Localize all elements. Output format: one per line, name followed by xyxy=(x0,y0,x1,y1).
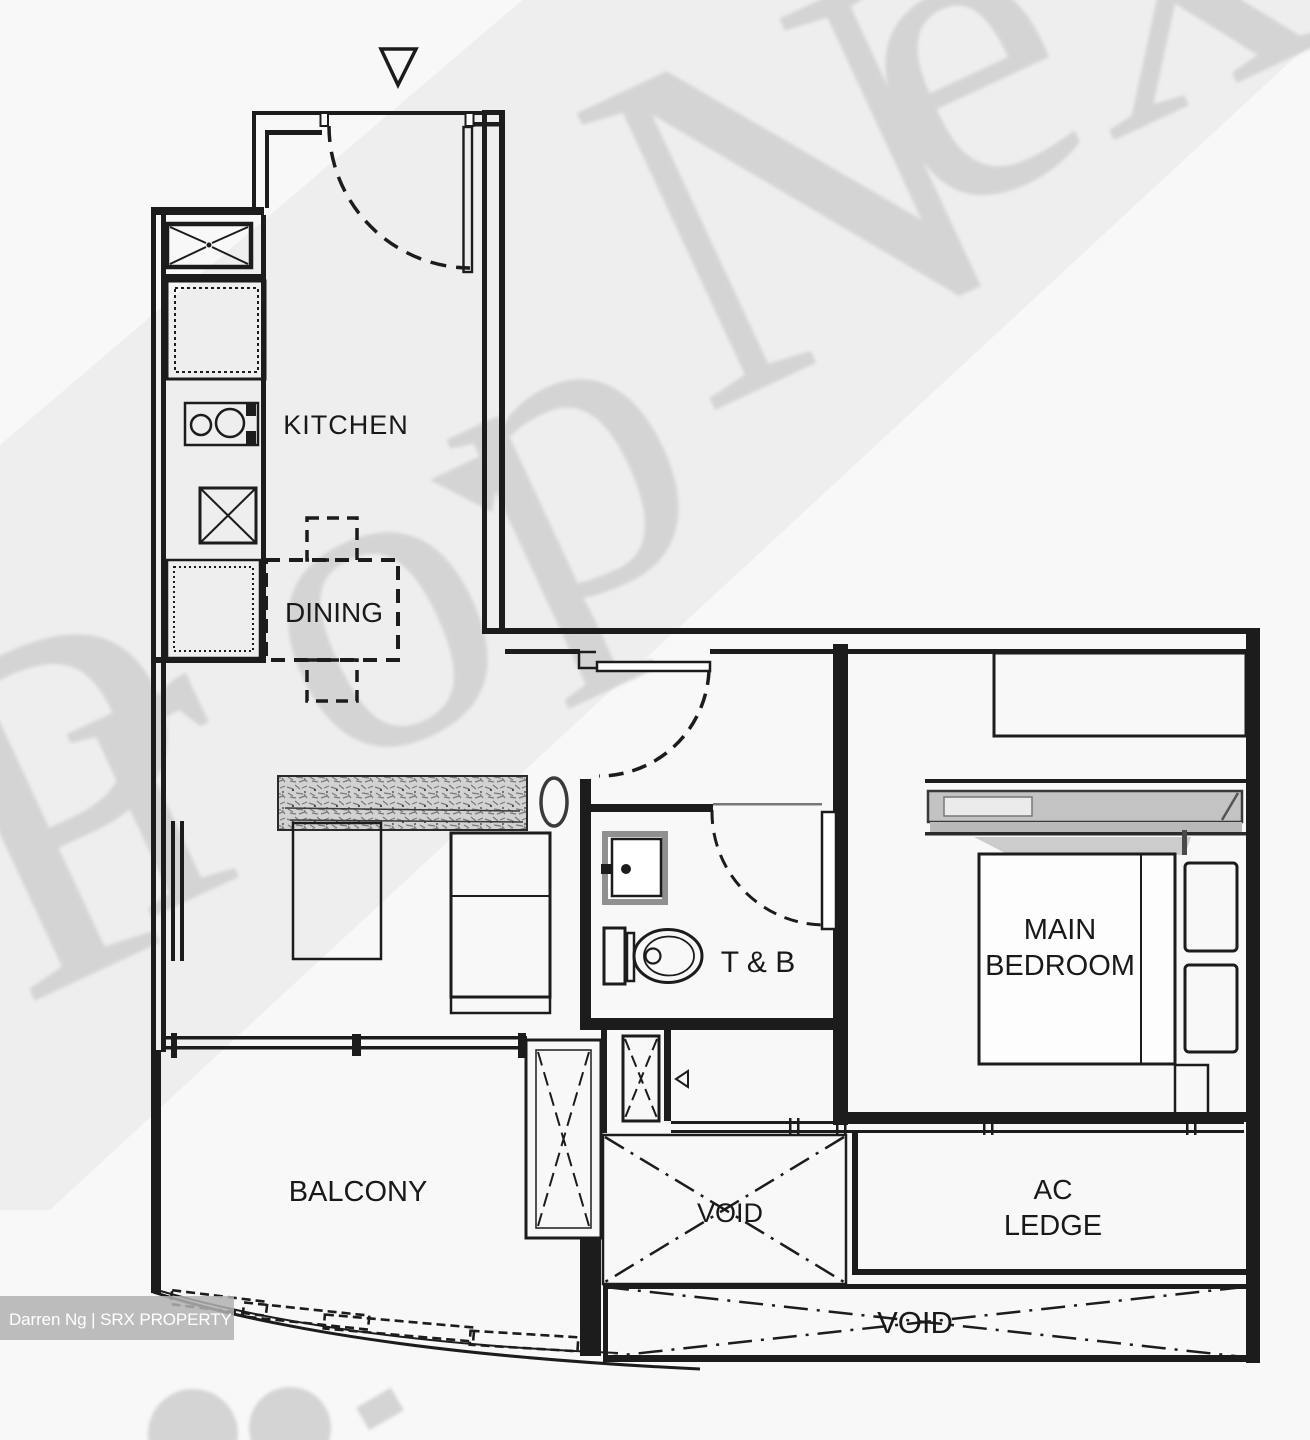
svg-text:BEDROOM: BEDROOM xyxy=(985,950,1135,982)
svg-text:BALCONY: BALCONY xyxy=(289,1176,428,1208)
svg-text:LEDGE: LEDGE xyxy=(1004,1210,1102,1242)
svg-text:AC: AC xyxy=(1034,1174,1073,1205)
svg-text:T & B: T & B xyxy=(721,946,795,979)
svg-text:VOID: VOID xyxy=(697,1198,763,1228)
svg-text:DINING: DINING xyxy=(285,597,383,628)
svg-text:VOID: VOID xyxy=(877,1305,953,1340)
svg-text:Darren Ng | SRX PROPERTY: Darren Ng | SRX PROPERTY xyxy=(9,1310,232,1329)
svg-text:MAIN: MAIN xyxy=(1024,914,1097,946)
svg-text:KITCHEN: KITCHEN xyxy=(283,410,409,440)
